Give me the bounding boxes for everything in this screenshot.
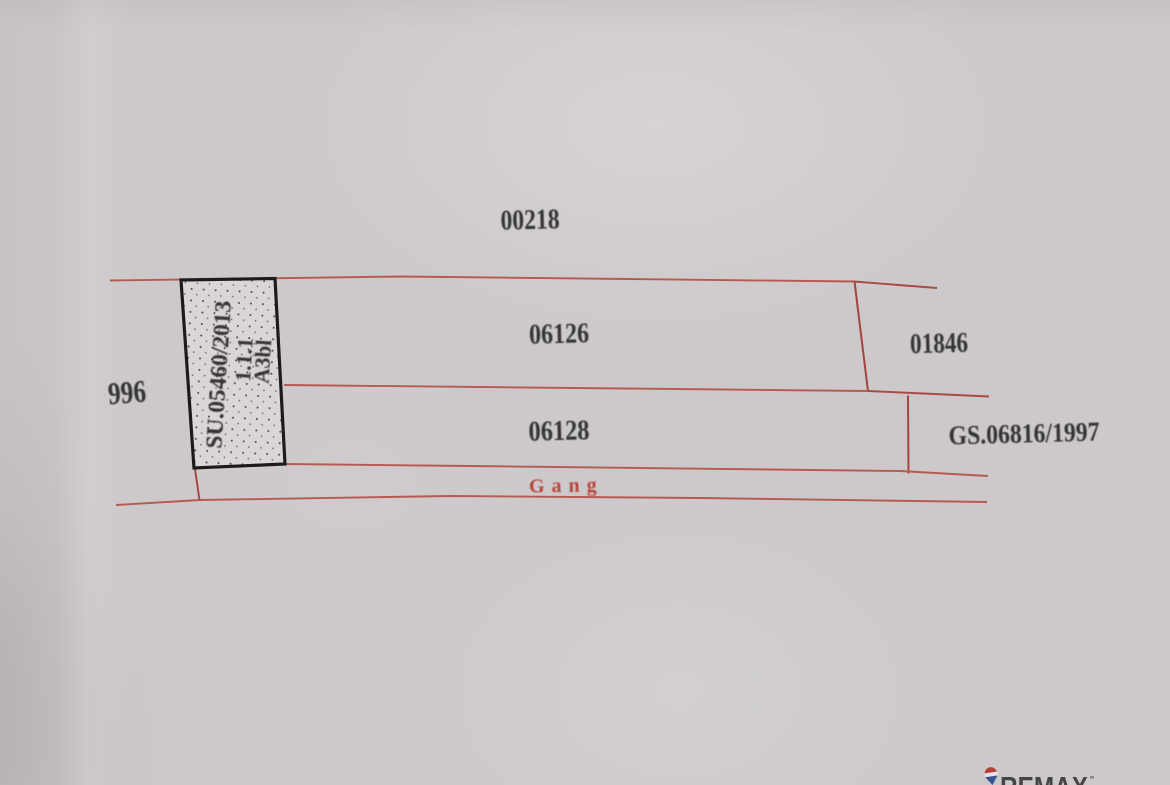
svg-text:01846: 01846: [910, 328, 969, 361]
svg-text:REMAX: REMAX: [1000, 772, 1089, 785]
svg-text:GS.06816/1997: GS.06816/1997: [948, 417, 1100, 451]
svg-text:A3bl: A3bl: [249, 339, 277, 385]
svg-text:00218: 00218: [500, 203, 560, 237]
svg-text:06126: 06126: [529, 317, 590, 351]
svg-text:06128: 06128: [528, 415, 590, 448]
svg-text:Gang: Gang: [529, 474, 604, 497]
svg-text:996: 996: [107, 373, 148, 412]
